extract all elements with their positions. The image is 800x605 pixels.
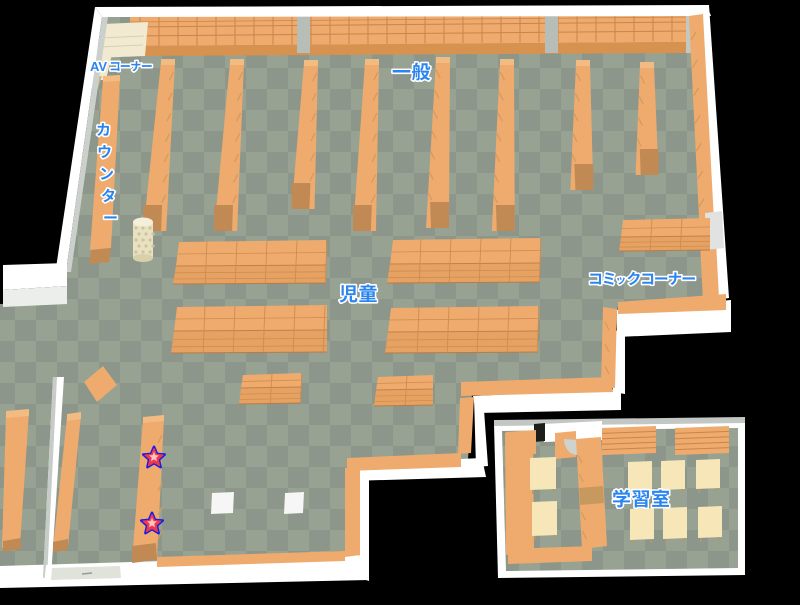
svg-text:AV: AV [90, 59, 107, 74]
